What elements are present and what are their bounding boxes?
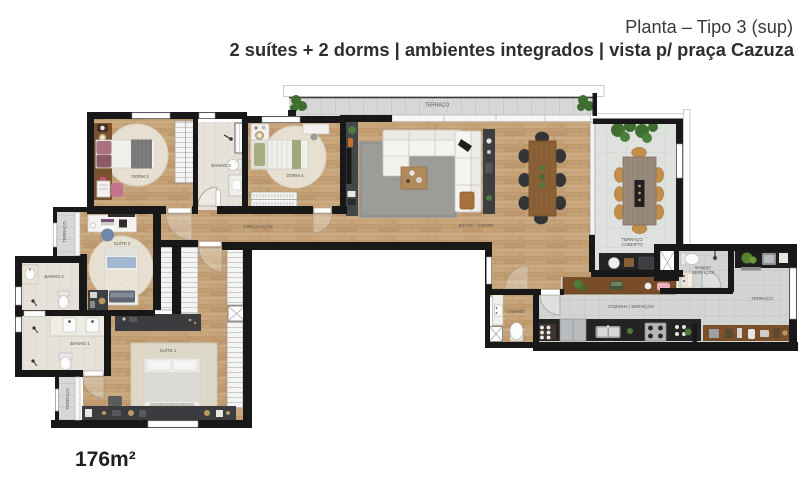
svg-text:COBERTO: COBERTO [621, 242, 643, 247]
svg-text:DORM 3: DORM 3 [131, 174, 149, 179]
svg-text:SUÍTE 2: SUÍTE 2 [114, 241, 131, 246]
svg-text:BANHO 3: BANHO 3 [211, 163, 231, 168]
svg-text:SUÍTE 1: SUÍTE 1 [160, 348, 177, 353]
svg-text:COZINHA / SERVIÇOS: COZINHA / SERVIÇOS [608, 304, 654, 309]
svg-text:176m²: 176m² [75, 448, 136, 471]
svg-text:ESTAR / JANTAR: ESTAR / JANTAR [459, 223, 494, 228]
svg-text:DORM 4: DORM 4 [286, 173, 304, 178]
svg-text:TERRAÇO: TERRAÇO [65, 388, 70, 410]
svg-text:SERVIÇOS: SERVIÇOS [692, 270, 715, 275]
svg-text:TERRAÇO: TERRAÇO [751, 296, 773, 301]
svg-text:BANHO 2: BANHO 2 [44, 274, 64, 279]
svg-text:CIRCULAÇÃO: CIRCULAÇÃO [244, 224, 273, 229]
svg-text:BANHO 1: BANHO 1 [70, 341, 90, 346]
svg-text:LAVABO: LAVABO [508, 309, 526, 314]
svg-text:2 suítes + 2 dorms | ambientes: 2 suítes + 2 dorms | ambientes integrado… [230, 39, 795, 60]
svg-text:TERRAÇO: TERRAÇO [425, 103, 450, 109]
svg-text:Planta – Tipo 3 (sup): Planta – Tipo 3 (sup) [625, 17, 793, 37]
svg-text:TERRAÇO: TERRAÇO [62, 221, 67, 243]
